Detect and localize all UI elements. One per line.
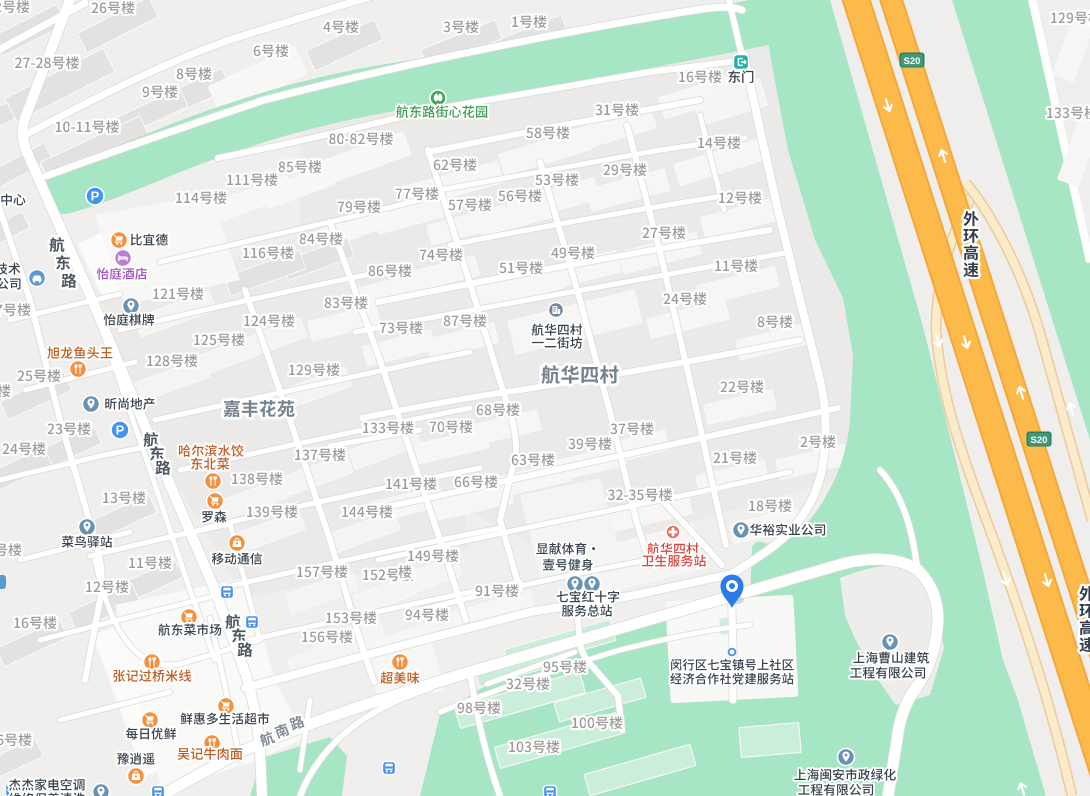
svg-text:P: P [116,423,125,438]
svg-text:S20: S20 [904,56,921,67]
svg-text:S20: S20 [1031,435,1048,446]
svg-text:P: P [91,189,100,204]
